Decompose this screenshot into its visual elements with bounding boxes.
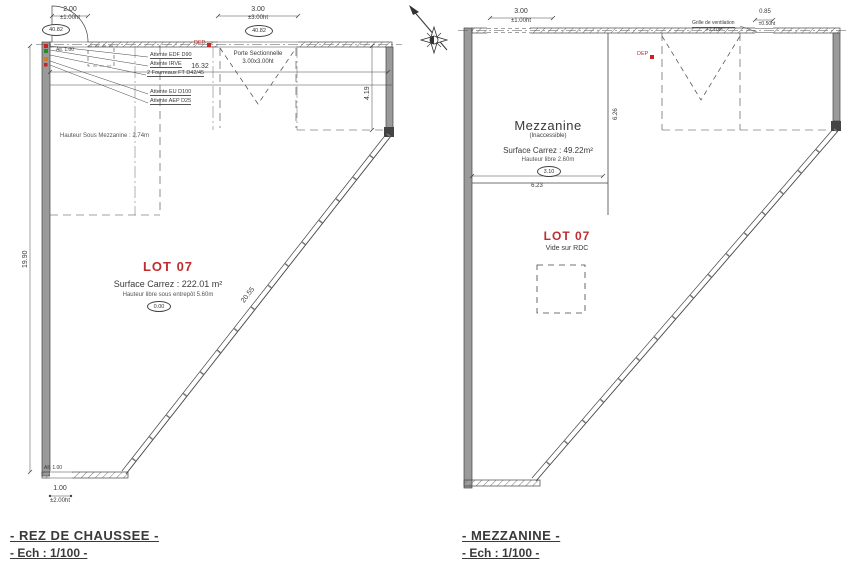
rdc-lot-surface: Surface Carrez : 222.01 m² [114,280,223,290]
mezz-room-sub: (Inaccessible) [529,133,566,140]
mezz-vent-sub: +2.70ht [706,28,723,34]
mezz-dep-label: DEP [637,51,648,57]
rdc-sill-top-note: All. 1.00 [56,48,74,54]
rdc-sectional-level-marker: 40.82 [245,25,273,37]
rdc-left-height-dim: 19.90 [22,250,30,268]
mezz-room-height-note: Hauteur libre 2.60m [522,157,575,164]
rdc-attente-fourreaux: 2 Fourreaux FT D42/45 [147,70,204,77]
rdc-sectional-label: Porte Sectionnelle [234,51,283,58]
rdc-sill-bottom-note: All. 1.00 [44,466,62,472]
rdc-attente-aep: Attente AEP D25 [150,98,191,105]
mezzanine-plan-lines [458,16,848,488]
rdc-plan-scale: - Ech : 1/100 - [10,547,87,560]
mezz-vent-height-dim: ±0.50ht [759,22,776,28]
rdc-right-height-dim: 4.19 [364,86,372,100]
rdc-attente-edf: Attente EDF D90 [150,52,192,59]
rdc-lot-level-marker: 0.00 [147,301,171,312]
mezz-top-width-dim: 3.00 [514,8,528,16]
mezz-vent-width-dim: 0.85 [759,9,771,16]
rdc-sectional-width-dim: 3.00 [251,6,265,14]
mezz-room-surface: Surface Carrez : 49.22m² [503,147,593,156]
floor-plan-sheet: 2.00 ±1.00ht 40.82 All. 1.00 3.00 ±3.00h… [0,0,850,567]
mezz-room-level-marker: 3.10 [537,166,561,177]
rdc-door-width-dim: 2.00 [63,6,77,14]
rdc-lot-label: LOT 07 [143,260,193,274]
rdc-mezzanine-height-note: Hauteur Sous Mezzanine : 2.74m [60,133,149,140]
rdc-plan-lines [28,6,402,497]
rdc-attente-irve: Attente IRVE [150,61,182,68]
rdc-door-level-marker: 40.82 [42,24,70,36]
mezz-plan-title: - MEZZANINE - [462,529,560,543]
rdc-bottom-door-dim: 1.00 [53,485,67,493]
rdc-bottom-door-height-dim: ±2.00ht [50,498,70,505]
rdc-sectional-height-dim: ±3.00ht [248,15,268,22]
rdc-lot-height-note: Hauteur libre sous entrepôt 5.60m [123,292,214,299]
mezz-room-depth-dim: 6.26 [613,108,620,120]
rdc-sectional-size: 3.00x3.00ht [242,59,273,66]
mezz-room-width-dim: 6.23 [531,183,543,190]
mezz-plan-scale: - Ech : 1/100 - [462,547,539,560]
rdc-plan-title: - REZ DE CHAUSSEE - [10,529,159,543]
rdc-door-height-dim: ±1.00ht [60,15,80,22]
mezz-room-name: Mezzanine [514,119,581,133]
mezz-top-height-dim: ±1.00ht [511,18,531,25]
rdc-dep-label: DEP [194,40,205,46]
north-arrow-icon [409,5,447,53]
mezz-lot-label: LOT 07 [544,230,591,243]
mezz-lot-sub: Vide sur RDC [546,245,589,253]
rdc-attente-eu: Attente EU D100 [150,89,191,96]
